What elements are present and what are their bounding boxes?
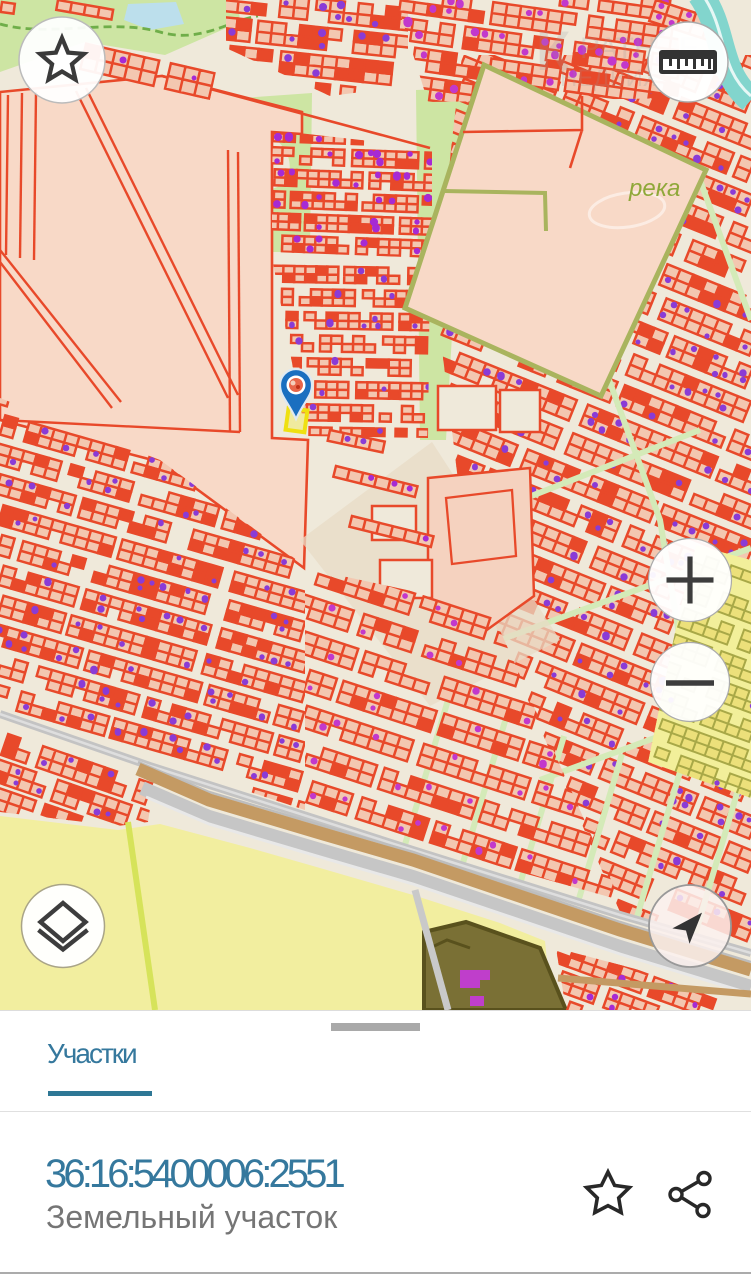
- svg-text:река: река: [628, 175, 680, 202]
